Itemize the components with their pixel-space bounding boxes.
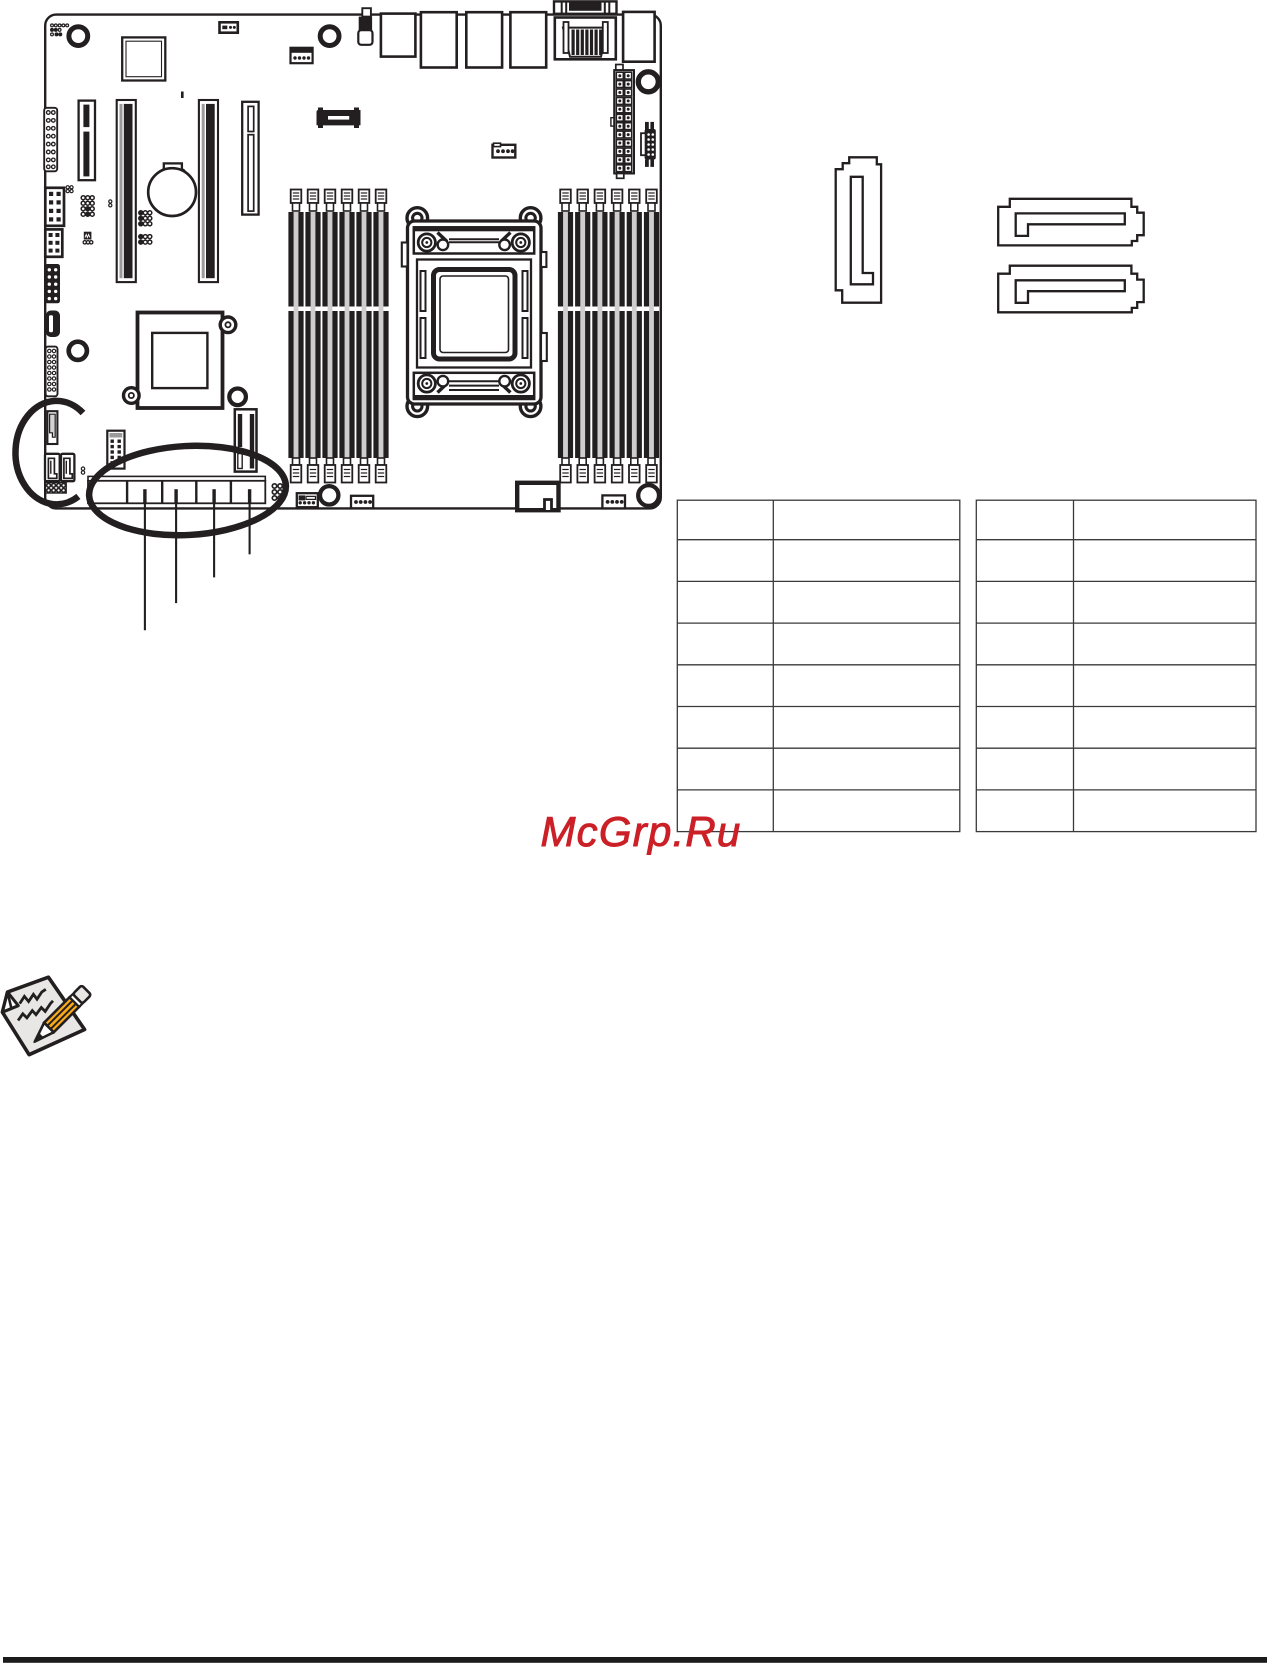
svg-text:McGrp.Ru: McGrp.Ru <box>541 808 742 855</box>
